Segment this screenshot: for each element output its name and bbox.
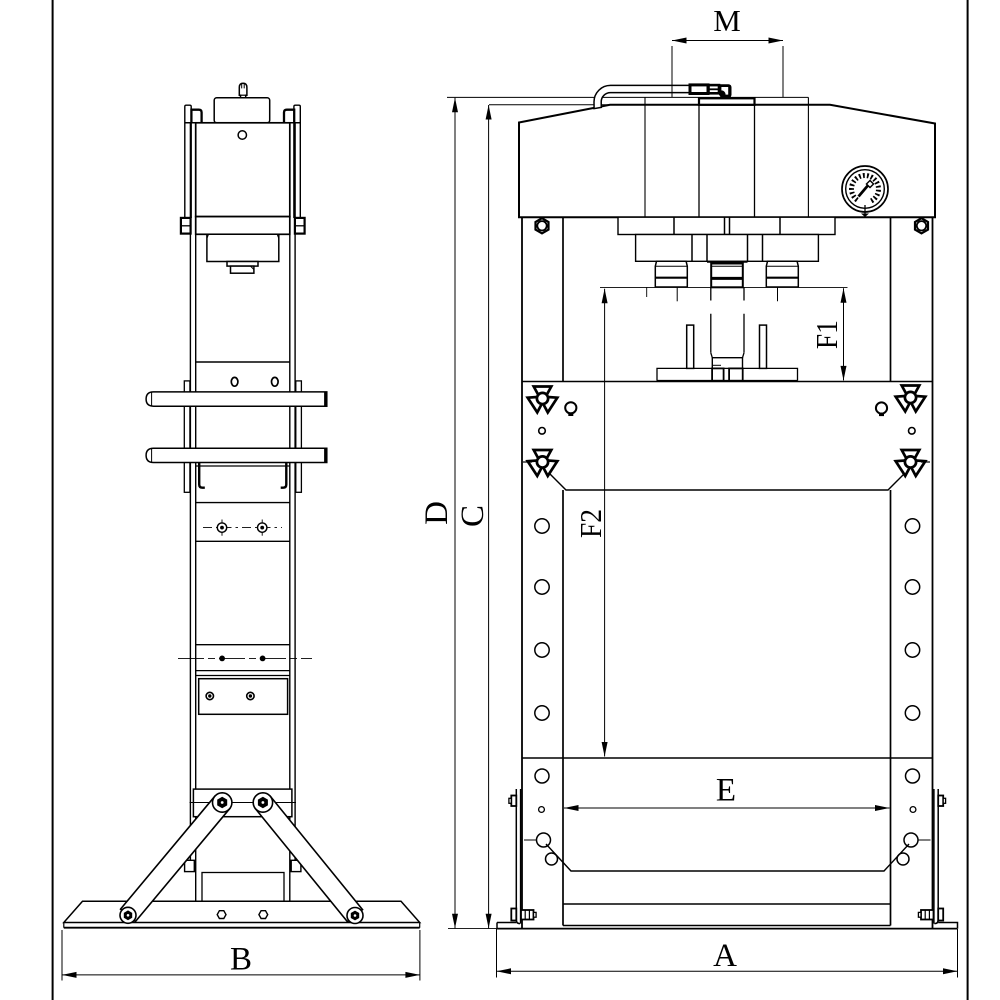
svg-text:B: B	[230, 942, 252, 978]
svg-text:C: C	[455, 505, 491, 527]
svg-text:F1: F1	[809, 320, 844, 349]
svg-text:F2: F2	[573, 509, 608, 538]
svg-text:M: M	[713, 3, 741, 38]
svg-text:A: A	[713, 938, 737, 974]
svg-text:D: D	[419, 501, 455, 525]
svg-text:E: E	[716, 773, 736, 809]
